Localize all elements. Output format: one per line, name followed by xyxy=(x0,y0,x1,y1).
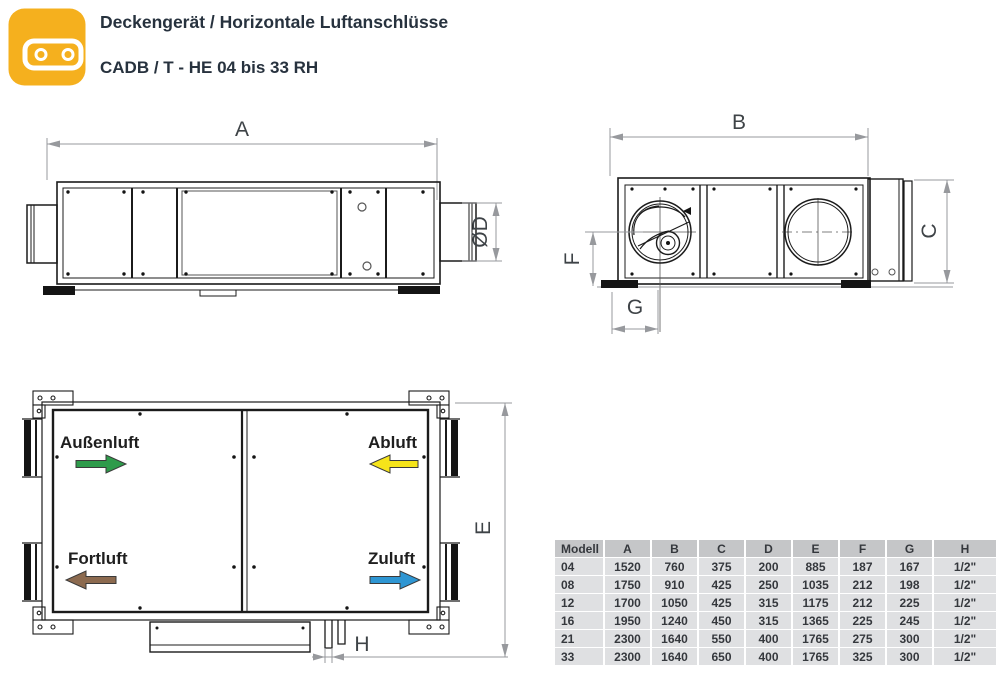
value-cell: 1750 xyxy=(605,576,650,593)
model-cell: 08 xyxy=(555,576,603,593)
drain-pipes xyxy=(325,620,345,648)
value-cell: 910 xyxy=(652,576,697,593)
dim-e-label: E xyxy=(472,521,495,535)
value-cell: 167 xyxy=(887,558,932,575)
dim-g-label: G xyxy=(627,296,643,319)
dimension-g: G xyxy=(612,290,658,334)
dimension-d: ØD xyxy=(462,203,502,261)
datasheet-page: Deckengerät / Horizontale Luftanschlüsse… xyxy=(0,0,1000,682)
value-cell: 650 xyxy=(699,648,744,665)
panel-screws xyxy=(66,190,424,275)
value-cell: 1240 xyxy=(652,612,697,629)
value-cell: 375 xyxy=(699,558,744,575)
value-cell: 400 xyxy=(746,648,791,665)
value-cell: 200 xyxy=(746,558,791,575)
model-cell: 04 xyxy=(555,558,603,575)
value-cell: 550 xyxy=(699,630,744,647)
model-cell: 16 xyxy=(555,612,603,629)
duct-right-top xyxy=(440,419,460,477)
dim-b-label: B xyxy=(732,111,746,134)
value-cell: 225 xyxy=(887,594,932,611)
value-cell: 1/2" xyxy=(934,648,996,665)
value-cell: 400 xyxy=(746,630,791,647)
end-view-casing xyxy=(618,178,870,284)
page-subtitle: CADB / T - HE 04 bis 33 RH xyxy=(100,58,318,78)
duct-opening xyxy=(782,198,854,266)
table-header-a: A xyxy=(605,540,650,557)
value-cell: 1640 xyxy=(652,648,697,665)
value-cell: 1050 xyxy=(652,594,697,611)
table-header-d: D xyxy=(746,540,791,557)
dim-a-label: A xyxy=(235,118,249,141)
table-header-h: H xyxy=(934,540,996,557)
value-cell: 1/2" xyxy=(934,612,996,629)
table-header-modell: Modell xyxy=(555,540,603,557)
table-row: 161950124045031513652252451/2" xyxy=(555,612,996,629)
icon-background xyxy=(9,9,86,86)
value-cell: 225 xyxy=(840,612,885,629)
value-cell: 1765 xyxy=(793,630,838,647)
value-cell: 275 xyxy=(840,630,885,647)
value-cell: 885 xyxy=(793,558,838,575)
table-row: 08175091042525010352121981/2" xyxy=(555,576,996,593)
value-cell: 212 xyxy=(840,576,885,593)
table-row: 212300164055040017652753001/2" xyxy=(555,630,996,647)
table-header-row: ModellABCDEFGH xyxy=(555,540,996,557)
value-cell: 2300 xyxy=(605,648,650,665)
top-view-drawing: Außenluft Abluft Fortluft Zuluft E xyxy=(12,376,532,672)
model-cell: 21 xyxy=(555,630,603,647)
value-cell: 450 xyxy=(699,612,744,629)
value-cell: 1640 xyxy=(652,630,697,647)
table-header-e: E xyxy=(793,540,838,557)
side-view-drawing: A xyxy=(10,106,515,306)
abluft-label: Abluft xyxy=(368,433,417,452)
table-row: 0415207603752008851871671/2" xyxy=(555,558,996,575)
table-row: 121700105042531511752122251/2" xyxy=(555,594,996,611)
bottom-drawer xyxy=(150,622,310,652)
value-cell: 198 xyxy=(887,576,932,593)
value-cell: 212 xyxy=(840,594,885,611)
side-panel xyxy=(868,179,912,281)
value-cell: 1/2" xyxy=(934,594,996,611)
value-cell: 300 xyxy=(887,630,932,647)
value-cell: 1365 xyxy=(793,612,838,629)
end-view-drawing: B xyxy=(555,98,1000,345)
dim-h-label: H xyxy=(354,633,369,656)
aussenluft-label: Außenluft xyxy=(60,433,140,452)
value-cell: 1520 xyxy=(605,558,650,575)
value-cell: 187 xyxy=(840,558,885,575)
value-cell: 245 xyxy=(887,612,932,629)
page-title: Deckengerät / Horizontale Luftanschlüsse xyxy=(100,12,448,33)
aussenluft-arrow xyxy=(76,455,126,473)
dimension-b: B xyxy=(610,111,868,176)
value-cell: 1950 xyxy=(605,612,650,629)
table-header-b: B xyxy=(652,540,697,557)
model-cell: 12 xyxy=(555,594,603,611)
value-cell: 1/2" xyxy=(934,558,996,575)
zuluft-arrow xyxy=(370,571,420,589)
side-view-casing xyxy=(57,182,440,284)
value-cell: 250 xyxy=(746,576,791,593)
duct-left-bottom xyxy=(22,543,42,601)
value-cell: 2300 xyxy=(605,630,650,647)
duct-left-top xyxy=(22,419,42,477)
value-cell: 300 xyxy=(887,648,932,665)
dim-f-label: F xyxy=(561,253,584,266)
fortluft-label: Fortluft xyxy=(68,549,128,568)
value-cell: 1765 xyxy=(793,648,838,665)
dimension-table: ModellABCDEFGH 0415207603752008851871671… xyxy=(553,539,998,666)
value-cell: 425 xyxy=(699,576,744,593)
dimension-e: E xyxy=(455,403,512,657)
dimension-c: C xyxy=(914,180,954,283)
table-header-g: G xyxy=(887,540,932,557)
value-cell: 325 xyxy=(840,648,885,665)
zuluft-label: Zuluft xyxy=(368,549,416,568)
left-duct-spigot xyxy=(27,205,57,263)
value-cell: 1/2" xyxy=(934,630,996,647)
table-header-c: C xyxy=(699,540,744,557)
model-cell: 33 xyxy=(555,648,603,665)
value-cell: 1700 xyxy=(605,594,650,611)
value-cell: 1/2" xyxy=(934,576,996,593)
value-cell: 760 xyxy=(652,558,697,575)
value-cell: 315 xyxy=(746,612,791,629)
ceiling-unit-icon xyxy=(8,8,86,86)
value-cell: 315 xyxy=(746,594,791,611)
dim-d-label: ØD xyxy=(469,216,492,248)
side-view-feet xyxy=(43,286,440,296)
dim-c-label: C xyxy=(918,223,941,238)
duct-right-bottom xyxy=(440,543,460,601)
value-cell: 1175 xyxy=(793,594,838,611)
table-row: 332300164065040017653253001/2" xyxy=(555,648,996,665)
abluft-arrow xyxy=(370,455,418,473)
value-cell: 1035 xyxy=(793,576,838,593)
fortluft-arrow xyxy=(66,571,116,589)
table-header-f: F xyxy=(840,540,885,557)
dimension-h: H xyxy=(312,633,508,663)
value-cell: 425 xyxy=(699,594,744,611)
